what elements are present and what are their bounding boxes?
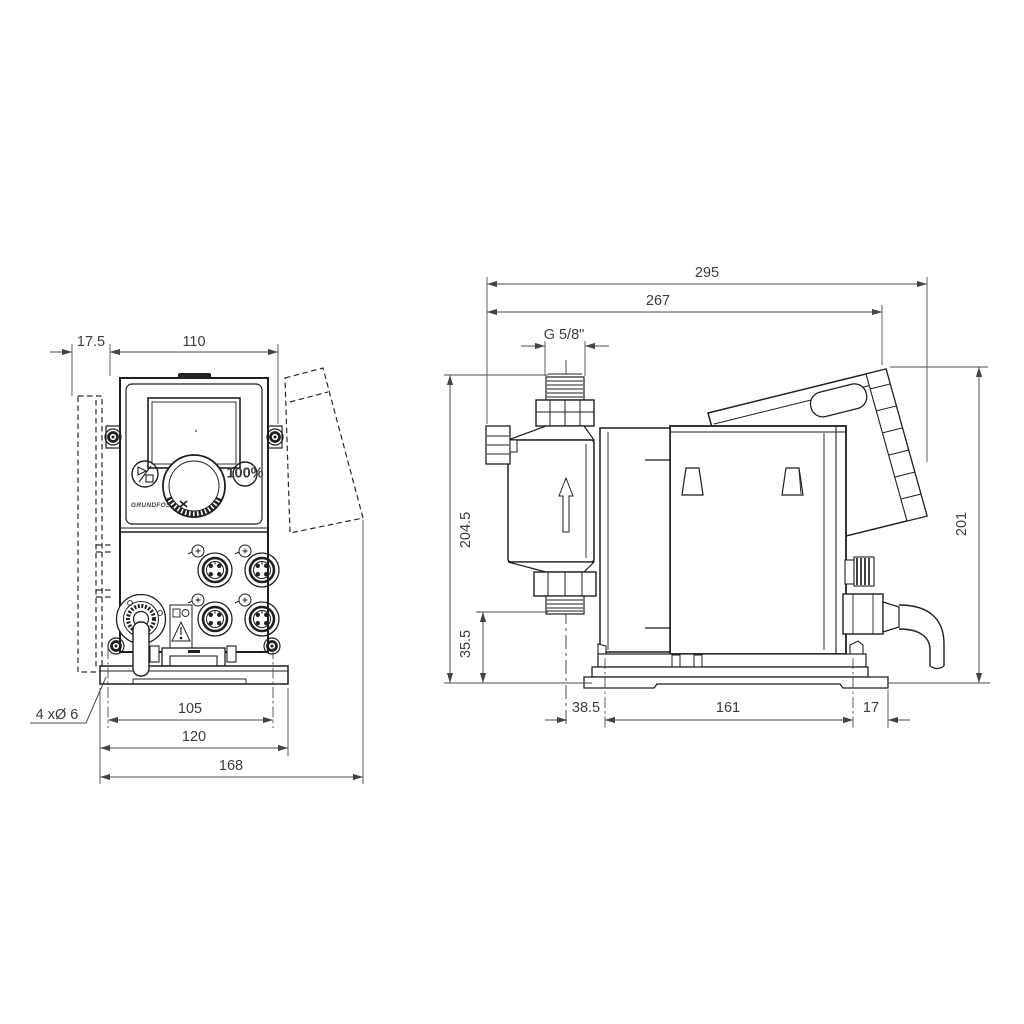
- side-view: 295 267 G 5/8" 204.5 35.5 201 38: [444, 265, 990, 728]
- dim-thread: G 5/8": [544, 327, 585, 343]
- dosing-head: [486, 360, 596, 726]
- dim-mounting-holes: 4 xØ 6: [36, 707, 79, 723]
- mounting-bracket-front: [100, 666, 288, 684]
- head-flange: [600, 428, 670, 652]
- dim-bracket-width: 120: [182, 729, 206, 745]
- cable-gland-front: [117, 595, 166, 677]
- mounting-hood-dashed: [285, 368, 363, 533]
- discharge-connection: [536, 374, 594, 426]
- dim-plate-offset: 17.5: [77, 334, 105, 350]
- mounting-slot: [682, 468, 703, 495]
- brand-logo-text: GRUNDFOS: [131, 502, 171, 509]
- motor-housing: [670, 426, 846, 654]
- technical-drawing-page: 100% GRUNDFOS: [0, 0, 1024, 1024]
- dim-overall-width: 168: [219, 758, 243, 774]
- dim-housing-height: 201: [954, 512, 970, 536]
- power-cable: [133, 622, 149, 676]
- dim-rear-offset: 17: [863, 700, 879, 716]
- dim-inlet-height: 35.5: [458, 630, 474, 658]
- mains-cable: [899, 605, 944, 669]
- dim-body-depth: 267: [646, 293, 670, 309]
- dim-head-offset: 38.5: [572, 700, 600, 716]
- dim-hole-spacing-front: 105: [178, 701, 202, 717]
- front-view: 100% GRUNDFOS: [30, 334, 363, 784]
- click-wheel[interactable]: [163, 455, 225, 517]
- dim-control-width: 110: [182, 334, 205, 350]
- dim-overall-height: 204.5: [458, 512, 474, 548]
- pump-head-body: [508, 440, 594, 562]
- suction-connection: [508, 562, 596, 614]
- top-handle: [178, 373, 211, 379]
- dim-hole-spacing-side: 161: [716, 700, 740, 716]
- dim-overall-depth: 295: [695, 265, 719, 281]
- dosing-pump-dimensional-drawing: 100% GRUNDFOS: [0, 0, 1024, 1024]
- boost-button-label: 100%: [226, 466, 263, 482]
